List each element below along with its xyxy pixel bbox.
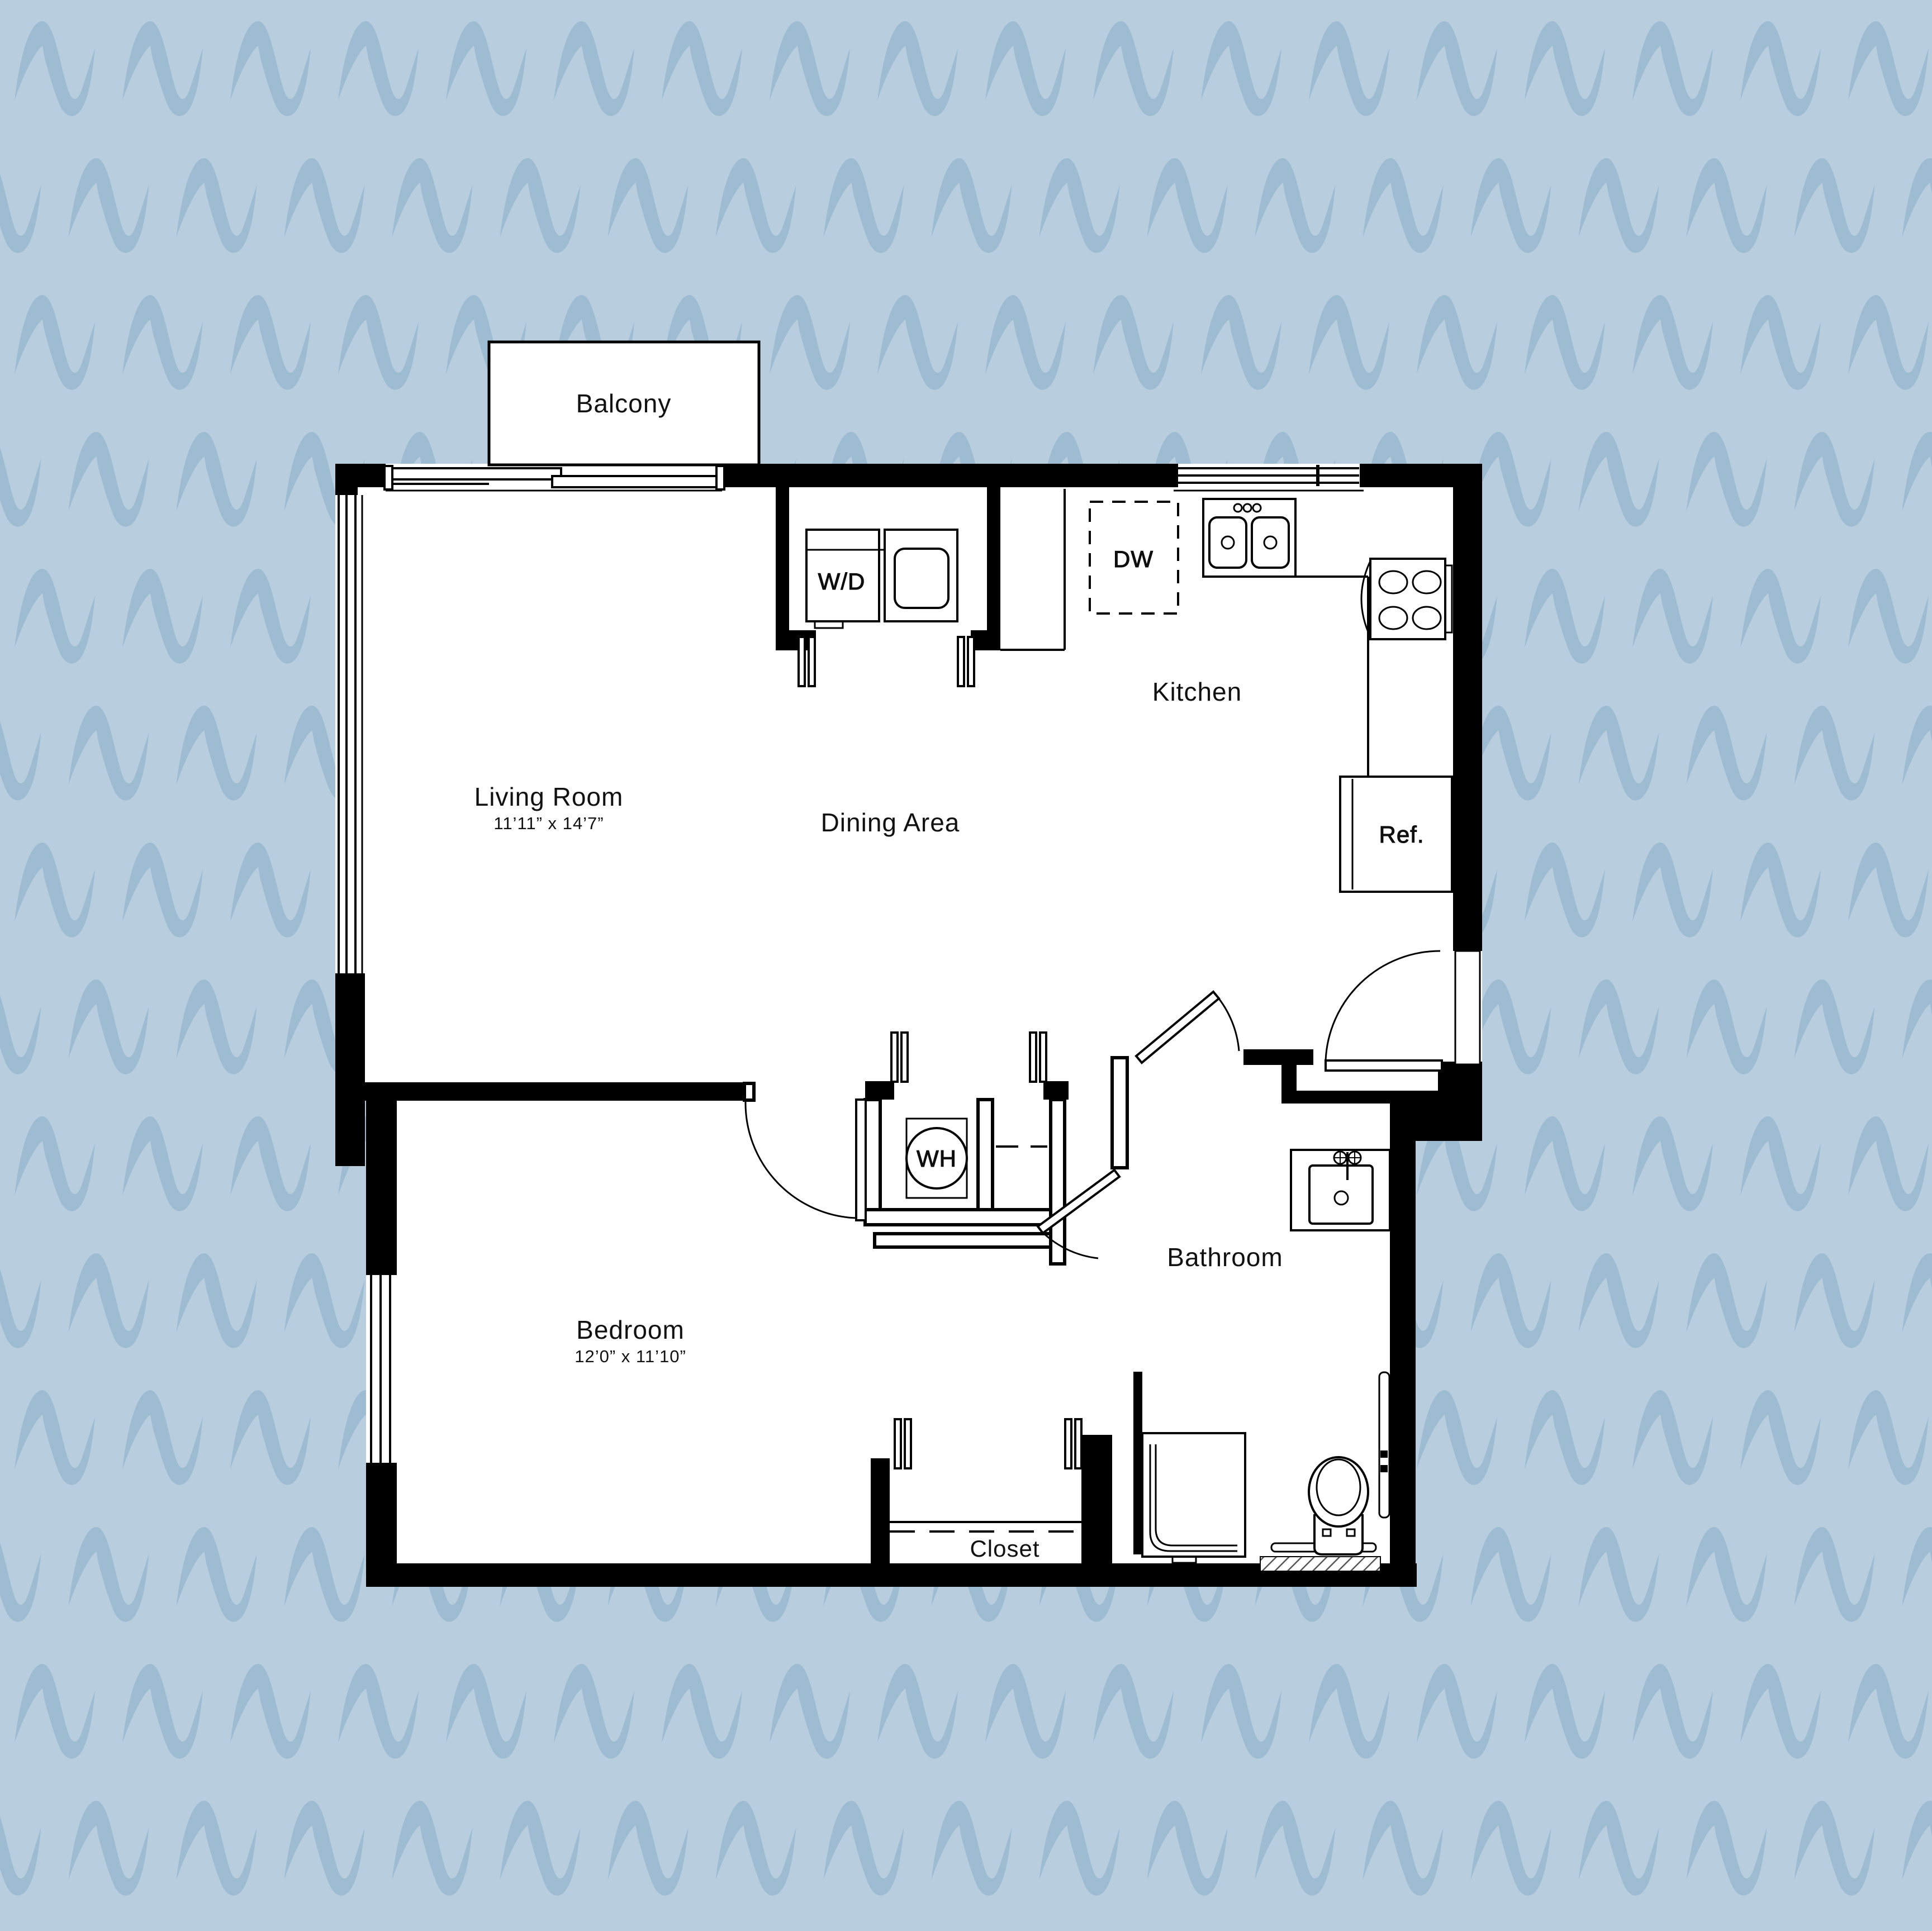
water-heater-label: WH: [917, 1145, 957, 1172]
shower-icon: [1142, 1433, 1245, 1569]
refrigerator-icon: Ref.: [1340, 777, 1452, 892]
living-room-dimensions: 11’11” x 14’7”: [493, 814, 604, 833]
refrigerator-label: Ref.: [1379, 821, 1424, 848]
floor-plan-page: Balcony: [0, 0, 1932, 1931]
balcony: Balcony: [489, 342, 759, 465]
closet-label: Closet: [970, 1535, 1039, 1562]
bathroom-label: Bathroom: [1167, 1243, 1283, 1272]
bath-mat-hatch: [1260, 1557, 1380, 1571]
floor-plan: Balcony: [335, 342, 1482, 1587]
balcony-label: Balcony: [576, 389, 672, 418]
vanity-sink-icon: [1291, 1150, 1390, 1230]
bedroom-label: Bedroom: [576, 1315, 685, 1344]
living-room-label: Living Room: [474, 782, 624, 811]
towel-bar-icon: [1379, 1372, 1389, 1518]
dishwasher-label: DW: [1113, 546, 1153, 572]
washer-dryer-label: W/D: [818, 568, 866, 594]
dining-area-label: Dining Area: [821, 808, 960, 837]
toilet-icon: [1309, 1457, 1368, 1554]
stove-icon: [1361, 559, 1452, 639]
kitchen-sink-icon: [1203, 499, 1295, 577]
kitchen-label: Kitchen: [1152, 677, 1242, 706]
bedroom-dimensions: 12’0” x 11’10”: [575, 1347, 686, 1366]
